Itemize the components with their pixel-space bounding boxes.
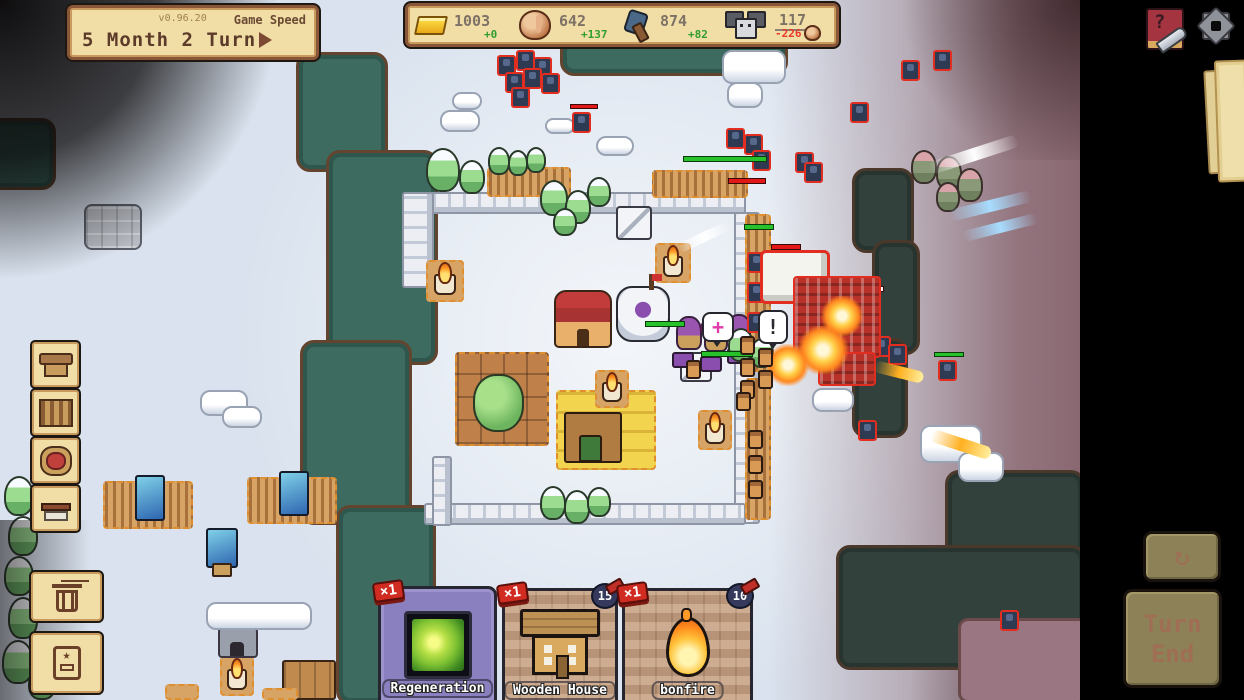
trash-icon	[54, 582, 80, 612]
alert-bubble: !	[758, 310, 788, 344]
version-label: v0.96.20	[159, 13, 207, 24]
defender-sprite	[748, 455, 763, 474]
enemy-sprite	[1000, 610, 1019, 631]
question-mark-icon: ?	[1154, 11, 1165, 33]
turn-end-button[interactable]: Turn End	[1123, 589, 1222, 688]
defender-sprite	[686, 360, 701, 379]
defender-sprite	[736, 392, 751, 411]
build-category-crafting-button[interactable]	[30, 484, 81, 533]
card-cost-badge: 10	[726, 583, 754, 609]
river-sprite	[0, 118, 56, 190]
card-regeneration[interactable]: ×1 Regeneration	[378, 586, 497, 700]
time-panel: v0.96.20 Game Speed 5 Month 2 Turn	[67, 5, 319, 60]
bread-icon	[519, 10, 551, 40]
discard-card-button[interactable]	[29, 570, 104, 623]
materials-resource: 874 +82	[622, 6, 725, 44]
defender-sprite	[758, 370, 773, 389]
snow-sprite	[727, 82, 763, 108]
turn-date-label: 5 Month 2 Turn	[82, 29, 256, 51]
hpr-sprite	[728, 178, 766, 184]
help-button[interactable]: ?	[1146, 8, 1184, 50]
mini-bread-icon	[804, 25, 821, 41]
enemy-sprite	[938, 360, 957, 381]
star-icon: ★	[63, 649, 71, 663]
bonfire-sprite	[426, 260, 464, 302]
heal-cross-icon: +	[712, 315, 724, 339]
scroll-card-front	[1214, 59, 1244, 182]
card-name-label: Regeneration	[382, 679, 494, 698]
build-category-housing-button[interactable]	[30, 340, 81, 389]
tent-sprite	[616, 206, 652, 240]
card-count-badge: ×1	[496, 581, 529, 605]
snow-sprite	[812, 388, 854, 412]
materials-value: 874	[660, 12, 687, 30]
snow-sprite	[596, 136, 634, 156]
population-icon	[725, 11, 767, 39]
hpg-sprite	[683, 156, 767, 162]
card-name-label: bonfire	[651, 681, 724, 700]
beamw-sprite	[677, 221, 732, 254]
gold-resource: 1003 +0	[416, 6, 519, 44]
wallv-sprite	[432, 456, 452, 526]
game-screen: + ! v0.96.20 Game Speed 5 Month 2 Turn 1…	[0, 0, 1244, 700]
tree-sprite	[459, 160, 485, 194]
deck-button[interactable]: ★	[29, 631, 104, 695]
snow-sprite	[722, 50, 786, 84]
card-count-badge: ×1	[372, 579, 405, 603]
farm-fence-icon	[39, 399, 73, 427]
orchard-sprite	[455, 352, 549, 446]
fishery-sprite	[103, 481, 193, 529]
population-delta: -226	[775, 25, 821, 41]
tree-sprite	[587, 177, 611, 207]
snow-sprite	[222, 406, 262, 428]
redraw-button[interactable]: ↻	[1143, 531, 1221, 582]
tree-sprite	[488, 147, 510, 175]
refresh-icon: ↻	[1174, 542, 1190, 572]
snow-sprite	[206, 602, 312, 630]
wooden-house-icon	[524, 609, 596, 677]
food-delta: +137	[581, 28, 608, 41]
bonfire-sprite	[595, 370, 629, 408]
defender-sprite	[748, 480, 763, 499]
gold-icon	[414, 16, 448, 35]
enemy-sprite	[901, 60, 920, 81]
materials-delta: +82	[688, 28, 708, 41]
heal-bubble: +	[702, 312, 734, 342]
tree-sprite	[540, 486, 566, 520]
enemy-sprite	[888, 344, 907, 365]
hpr-sprite	[570, 104, 598, 109]
bonfire-sprite	[698, 410, 732, 450]
turn-end-line1: Turn	[1144, 609, 1202, 639]
mtree-sprite	[957, 168, 983, 202]
enemy-sprite	[523, 68, 542, 89]
card-bonfire[interactable]: ×1 10 bonfire	[622, 588, 753, 700]
mauveland-sprite	[958, 618, 1080, 700]
tree-sprite	[526, 147, 546, 173]
inn-sprite	[554, 290, 612, 348]
deck-icon: ★	[53, 646, 81, 680]
fishstand-sprite	[206, 528, 238, 568]
bonfire-flame-icon	[666, 617, 710, 677]
hpg-sprite	[934, 352, 964, 357]
bonfire-sprite	[220, 656, 254, 696]
settings-button[interactable]	[1196, 6, 1236, 46]
dome-sprite	[616, 286, 670, 342]
card-wooden-house[interactable]: ×1 15 Wooden House	[502, 588, 618, 700]
enemy-sprite	[850, 102, 869, 123]
gear-icon	[1211, 21, 1221, 31]
tree-sprite	[553, 208, 577, 236]
regeneration-orb-icon	[404, 611, 472, 679]
game-speed-play-icon[interactable]	[259, 32, 272, 48]
ptable-sprite	[700, 356, 722, 372]
population-resource: 117 -226	[725, 6, 828, 44]
event-scroll-stack[interactable]	[1206, 60, 1244, 182]
farm-sprite	[652, 170, 748, 198]
plat-sprite	[262, 688, 298, 700]
card-count-badge: ×1	[616, 581, 649, 605]
enemy-sprite	[804, 162, 823, 183]
mallet-icon	[622, 11, 652, 39]
card-cost-badge: 15	[591, 583, 619, 609]
game-speed-label: Game Speed	[234, 13, 306, 27]
hpg-sprite	[744, 224, 774, 230]
tree-sprite	[508, 150, 528, 176]
tree-sprite	[564, 490, 590, 524]
beamb-sprite	[962, 213, 1038, 242]
turn-end-line2: End	[1151, 639, 1194, 669]
gold-delta: +0	[484, 28, 497, 41]
food-resource: 642 +137	[519, 6, 622, 44]
enemy-sprite	[541, 73, 560, 94]
alert-exclamation-icon: !	[767, 315, 779, 339]
workbench-icon	[41, 497, 71, 521]
snow-sprite	[545, 118, 575, 134]
defender-sprite	[758, 348, 773, 367]
build-category-hall-button[interactable]	[30, 436, 81, 485]
enemy-sprite	[726, 128, 745, 149]
hpg-sprite	[645, 321, 685, 327]
tree-sprite	[587, 487, 611, 517]
build-category-farming-button[interactable]	[30, 388, 81, 437]
resource-panel: 1003 +0 642 +137 874 +82 117 -226	[405, 3, 839, 47]
fishery-sprite	[247, 477, 337, 524]
enemy-sprite	[858, 420, 877, 441]
defender-sprite	[748, 430, 763, 449]
enemy-sprite	[511, 87, 530, 108]
tree-sprite	[426, 148, 460, 192]
snow-sprite	[452, 92, 482, 110]
defender-sprite	[740, 336, 755, 355]
enemy-sprite	[933, 50, 952, 71]
plat-sprite	[165, 684, 199, 700]
enemy-sprite	[572, 112, 591, 133]
town-hall-icon	[40, 446, 72, 476]
snow-sprite	[440, 110, 480, 132]
defender-sprite	[740, 358, 755, 377]
card-name-label: Wooden House	[504, 681, 616, 700]
rocks-sprite	[84, 204, 142, 250]
house-icon	[41, 353, 71, 377]
